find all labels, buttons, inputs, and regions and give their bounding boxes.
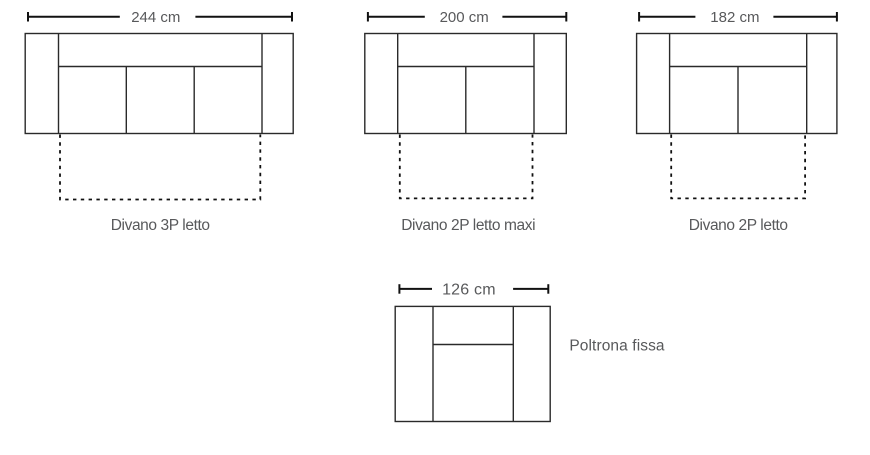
svg-text:200 cm: 200 cm	[440, 9, 489, 26]
svg-text:126 cm: 126 cm	[442, 282, 496, 299]
svg-text:Divano 3P letto: Divano 3P letto	[111, 217, 210, 234]
svg-text:244 cm: 244 cm	[131, 9, 180, 26]
svg-text:Divano 2P letto: Divano 2P letto	[689, 217, 788, 234]
svg-text:Divano 2P letto maxi: Divano 2P letto maxi	[401, 217, 535, 234]
svg-text:182 cm: 182 cm	[710, 9, 759, 26]
svg-text:Poltrona fissa: Poltrona fissa	[569, 338, 665, 355]
